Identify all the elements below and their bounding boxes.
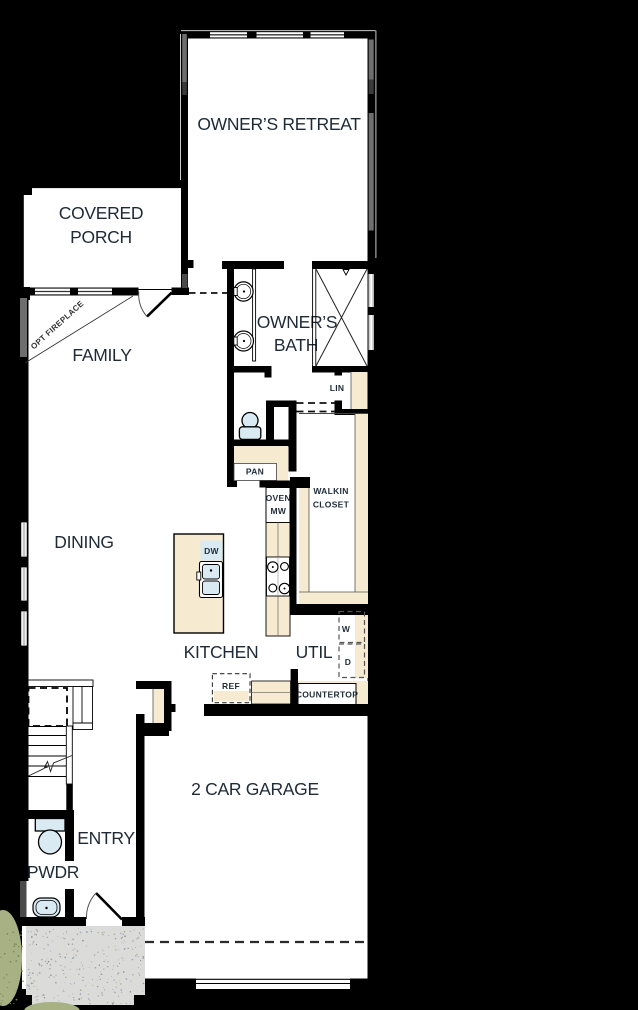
svg-text:COUNTERTOP: COUNTERTOP <box>296 690 358 700</box>
svg-text:KITCHEN: KITCHEN <box>184 642 259 662</box>
svg-text:PORCH: PORCH <box>70 227 132 247</box>
svg-text:W: W <box>342 624 351 634</box>
svg-text:FAMILY: FAMILY <box>72 345 132 365</box>
svg-text:CLOSET: CLOSET <box>313 500 350 510</box>
svg-text:ENTRY: ENTRY <box>77 828 135 848</box>
svg-text:BATH: BATH <box>274 335 318 355</box>
svg-text:REF: REF <box>222 681 240 691</box>
svg-text:MW: MW <box>270 506 286 516</box>
svg-text:OVEN: OVEN <box>266 493 291 503</box>
svg-text:2 CAR GARAGE: 2 CAR GARAGE <box>191 779 319 799</box>
svg-text:WALKIN: WALKIN <box>313 486 348 496</box>
svg-text:LIN: LIN <box>330 383 345 393</box>
svg-text:DW: DW <box>204 546 219 556</box>
svg-text:UTIL: UTIL <box>296 642 333 662</box>
svg-text:OWNER’S: OWNER’S <box>257 312 338 332</box>
svg-text:COVERED: COVERED <box>59 203 143 223</box>
svg-text:PWDR: PWDR <box>27 862 79 882</box>
svg-text:OWNER’S RETREAT: OWNER’S RETREAT <box>197 114 361 134</box>
svg-text:D: D <box>345 657 351 667</box>
svg-text:DINING: DINING <box>54 532 113 552</box>
svg-text:PAN: PAN <box>246 467 264 477</box>
